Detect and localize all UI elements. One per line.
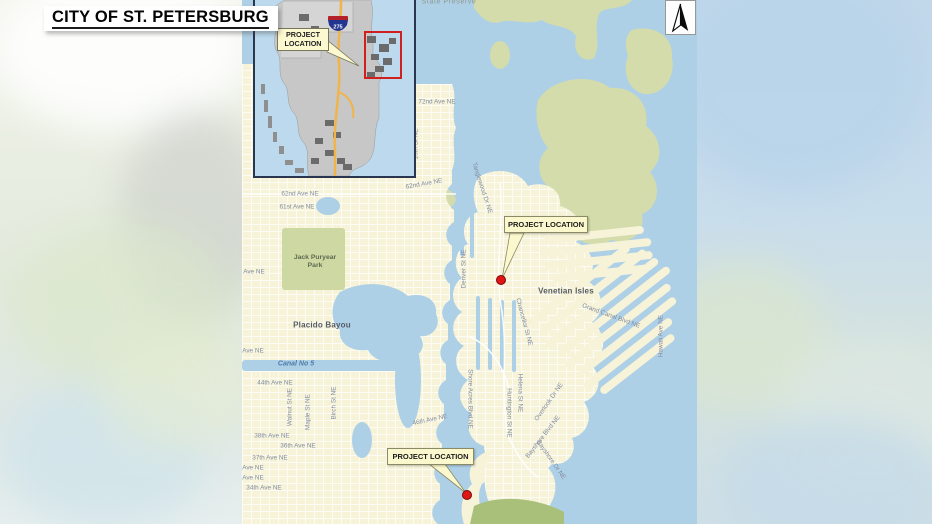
svg-text:275: 275 bbox=[333, 25, 342, 31]
blur-blobs bbox=[697, 0, 932, 524]
blur-blobs bbox=[0, 0, 242, 524]
blur-pillar-left bbox=[0, 0, 242, 524]
screenshot-stage: State PreserveJack Puryear ParkPlacido B… bbox=[0, 0, 932, 524]
page-title: CITY OF ST. PETERSBURG bbox=[44, 6, 278, 31]
project-location-callout-1: PROJECT LOCATION bbox=[504, 216, 588, 233]
page-title-text: CITY OF ST. PETERSBURG bbox=[52, 8, 269, 29]
inset-callout-label: PROJECT LOCATION bbox=[285, 30, 322, 48]
callout-label: PROJECT LOCATION bbox=[392, 452, 468, 461]
jack-puryear-park-area bbox=[282, 228, 345, 290]
callout-label: PROJECT LOCATION bbox=[508, 220, 584, 229]
blur-pillar-right bbox=[697, 0, 932, 524]
project-location-callout-2: PROJECT LOCATION bbox=[387, 448, 474, 465]
red-dot-marker-1 bbox=[497, 276, 506, 285]
north-arrow-icon bbox=[665, 0, 696, 35]
inset-project-location-callout: PROJECT LOCATION bbox=[277, 28, 329, 51]
inset-canvas: 275 bbox=[255, 0, 414, 176]
red-dot-marker-2 bbox=[463, 491, 472, 500]
